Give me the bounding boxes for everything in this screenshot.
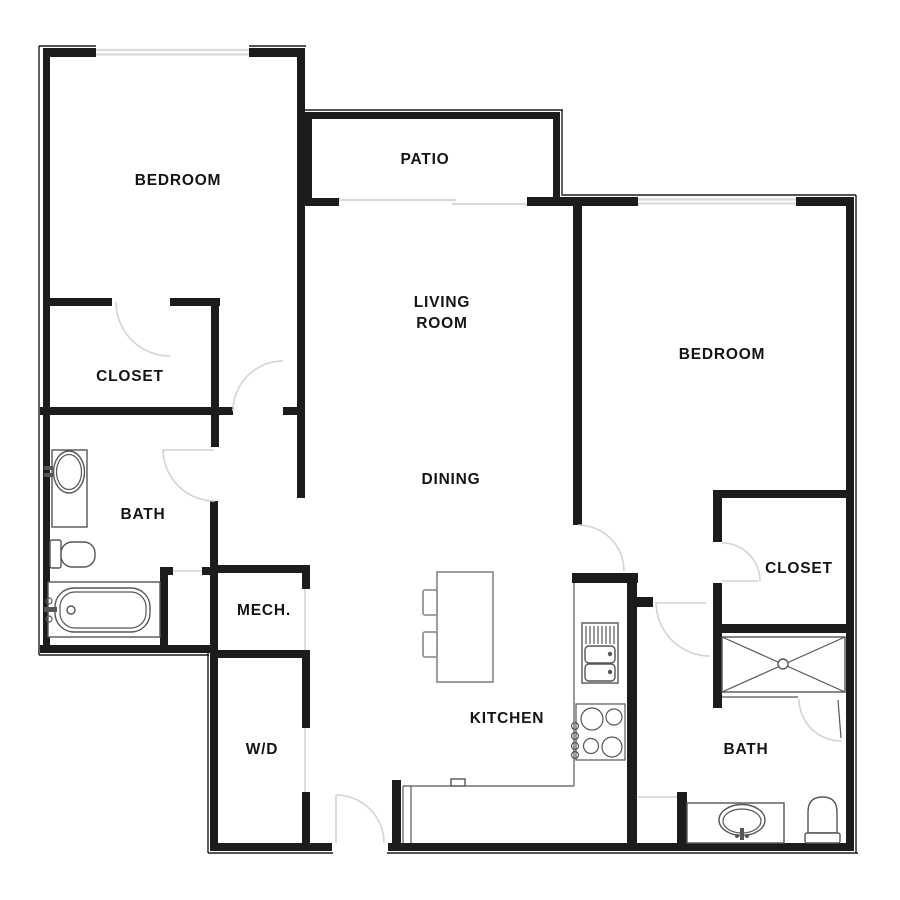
wall-bed2-left	[573, 205, 582, 525]
wall-bath1-bottom	[40, 645, 218, 653]
wall-mech-wd-divider	[211, 650, 310, 658]
wall-bottom-b	[388, 843, 854, 851]
wall-top-a	[43, 48, 96, 57]
patio-sliding-door	[339, 200, 527, 204]
wall-linen-left	[160, 567, 168, 653]
bath1-door	[163, 449, 215, 501]
wall-kitchen-right	[627, 573, 637, 851]
wall-bed1-right	[297, 48, 305, 498]
wall-left	[43, 48, 50, 653]
closet2-door	[722, 543, 760, 581]
room-label-bath-left: BATH	[120, 506, 165, 524]
wall-patio-left	[305, 112, 312, 206]
wall-hall2-stub	[637, 597, 653, 607]
wall-patio-right	[553, 112, 560, 205]
room-label-laundry: W/D	[246, 741, 279, 759]
wall-bed1-door-stub	[283, 407, 297, 415]
hall2-door	[656, 602, 710, 656]
wall-right	[846, 197, 854, 850]
closet1-door-arc	[116, 302, 170, 356]
wall-bottom-a	[210, 843, 332, 851]
toilet-left	[50, 540, 95, 568]
wall-mech-right-stub	[302, 565, 310, 589]
room-label-bedroom-left: BEDROOM	[135, 172, 222, 190]
wall-patio-top	[305, 112, 560, 119]
room-label-closet-left: CLOSET	[96, 368, 164, 386]
wall-patio-stub	[305, 198, 339, 206]
wall-bath1-right-a	[211, 415, 219, 447]
wall-linen-top-a	[160, 567, 173, 575]
wall-mech-top	[211, 565, 310, 573]
entry-door	[336, 795, 384, 843]
vanity-sink-right	[687, 803, 784, 843]
room-label-bedroom-right: BEDROOM	[679, 346, 766, 364]
room-label-living-room: LIVING ROOM	[414, 292, 470, 334]
window-bedroom-left	[96, 50, 249, 55]
wall-bed1-bottom-a	[43, 298, 112, 306]
wall-closet2-top	[713, 490, 853, 498]
wall-closet1-right	[211, 298, 219, 415]
dining-island	[423, 572, 493, 682]
island-stool	[423, 590, 437, 615]
living-room-line2: ROOM	[414, 313, 470, 334]
toilet-right	[805, 797, 840, 843]
wall-wd-right-b	[302, 792, 310, 851]
floor-plan: BEDROOM CLOSET BATH MECH. W/D PATIO LIVI…	[0, 0, 900, 900]
bath2-fixtures	[687, 637, 845, 843]
room-label-closet-right: CLOSET	[765, 560, 833, 578]
wall-hall1	[40, 407, 233, 415]
room-label-bath-right: BATH	[723, 741, 768, 759]
room-label-patio: PATIO	[400, 151, 449, 169]
island-stool	[423, 632, 437, 657]
wall-bed2-top-corner	[796, 197, 854, 206]
window-bedroom-right	[638, 200, 796, 204]
bath2-door	[799, 699, 841, 741]
wall-lower-left	[210, 501, 218, 851]
bedroom1-door-arc	[233, 361, 283, 411]
room-label-kitchen: KITCHEN	[470, 710, 545, 728]
bedroom2-door-arc	[578, 525, 624, 571]
stove	[572, 704, 626, 760]
wall-top-b	[249, 48, 305, 57]
room-label-dining: DINING	[421, 471, 480, 489]
room-label-mech: MECH.	[237, 602, 291, 620]
shower	[722, 637, 845, 697]
kitchen-sink	[582, 623, 618, 683]
wall-closet2-bottom	[713, 624, 853, 633]
living-room-line1: LIVING	[414, 292, 470, 313]
vanity-sink-left	[44, 450, 87, 527]
floorplan-canvas	[0, 0, 900, 900]
wall-bath2-niche	[677, 792, 687, 851]
bathtub	[44, 582, 160, 637]
bath1-fixtures	[44, 450, 160, 637]
wall-living-top	[527, 197, 638, 206]
wall-wd-right-a	[302, 658, 310, 728]
wall-closet2-left-b	[713, 583, 722, 708]
wall-entry-jamb	[392, 780, 401, 843]
